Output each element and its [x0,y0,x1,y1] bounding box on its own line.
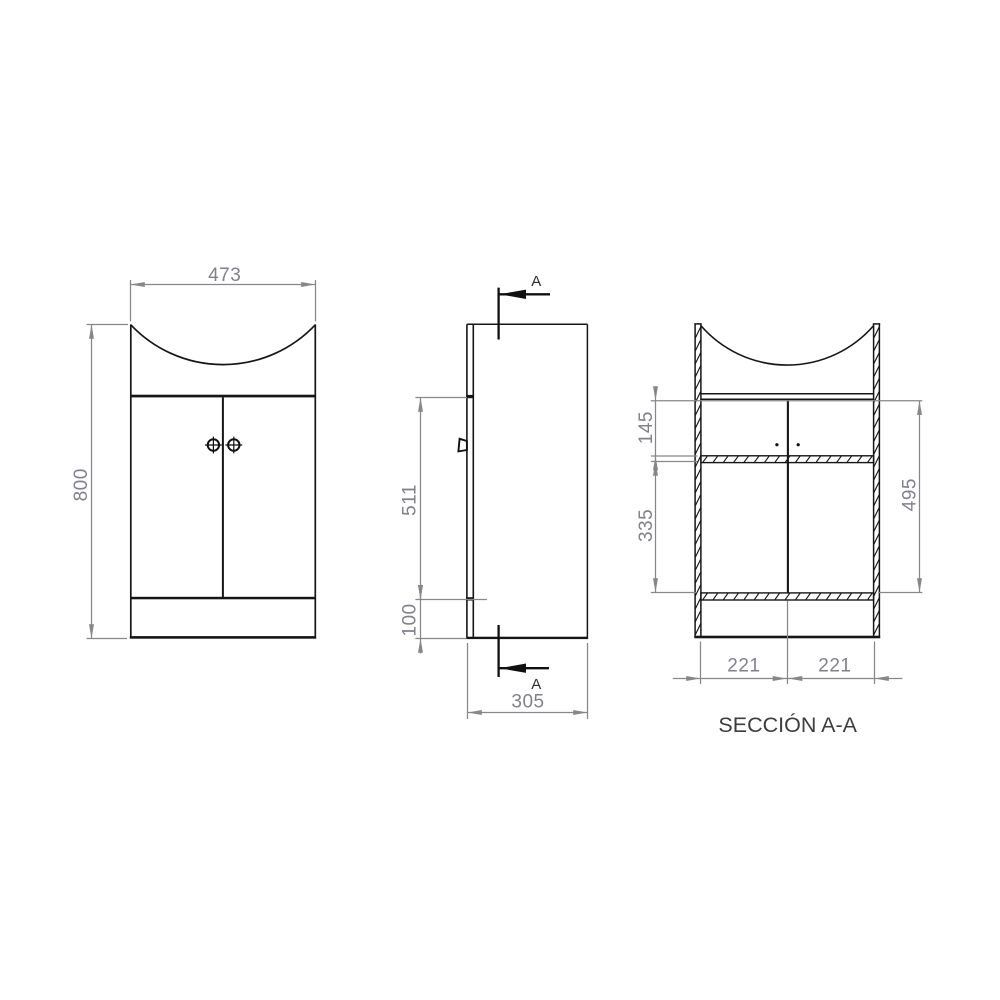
svg-text:SECCIÓN A-A: SECCIÓN A-A [718,712,857,737]
svg-text:221: 221 [818,655,851,676]
svg-text:495: 495 [900,478,921,511]
svg-text:305: 305 [511,692,544,713]
svg-text:A: A [531,273,541,290]
svg-text:473: 473 [208,265,241,286]
svg-text:100: 100 [399,603,420,636]
svg-text:221: 221 [727,655,760,676]
svg-text:800: 800 [71,468,92,501]
svg-text:511: 511 [399,484,420,516]
svg-text:335: 335 [636,509,657,542]
svg-text:145: 145 [636,411,657,444]
